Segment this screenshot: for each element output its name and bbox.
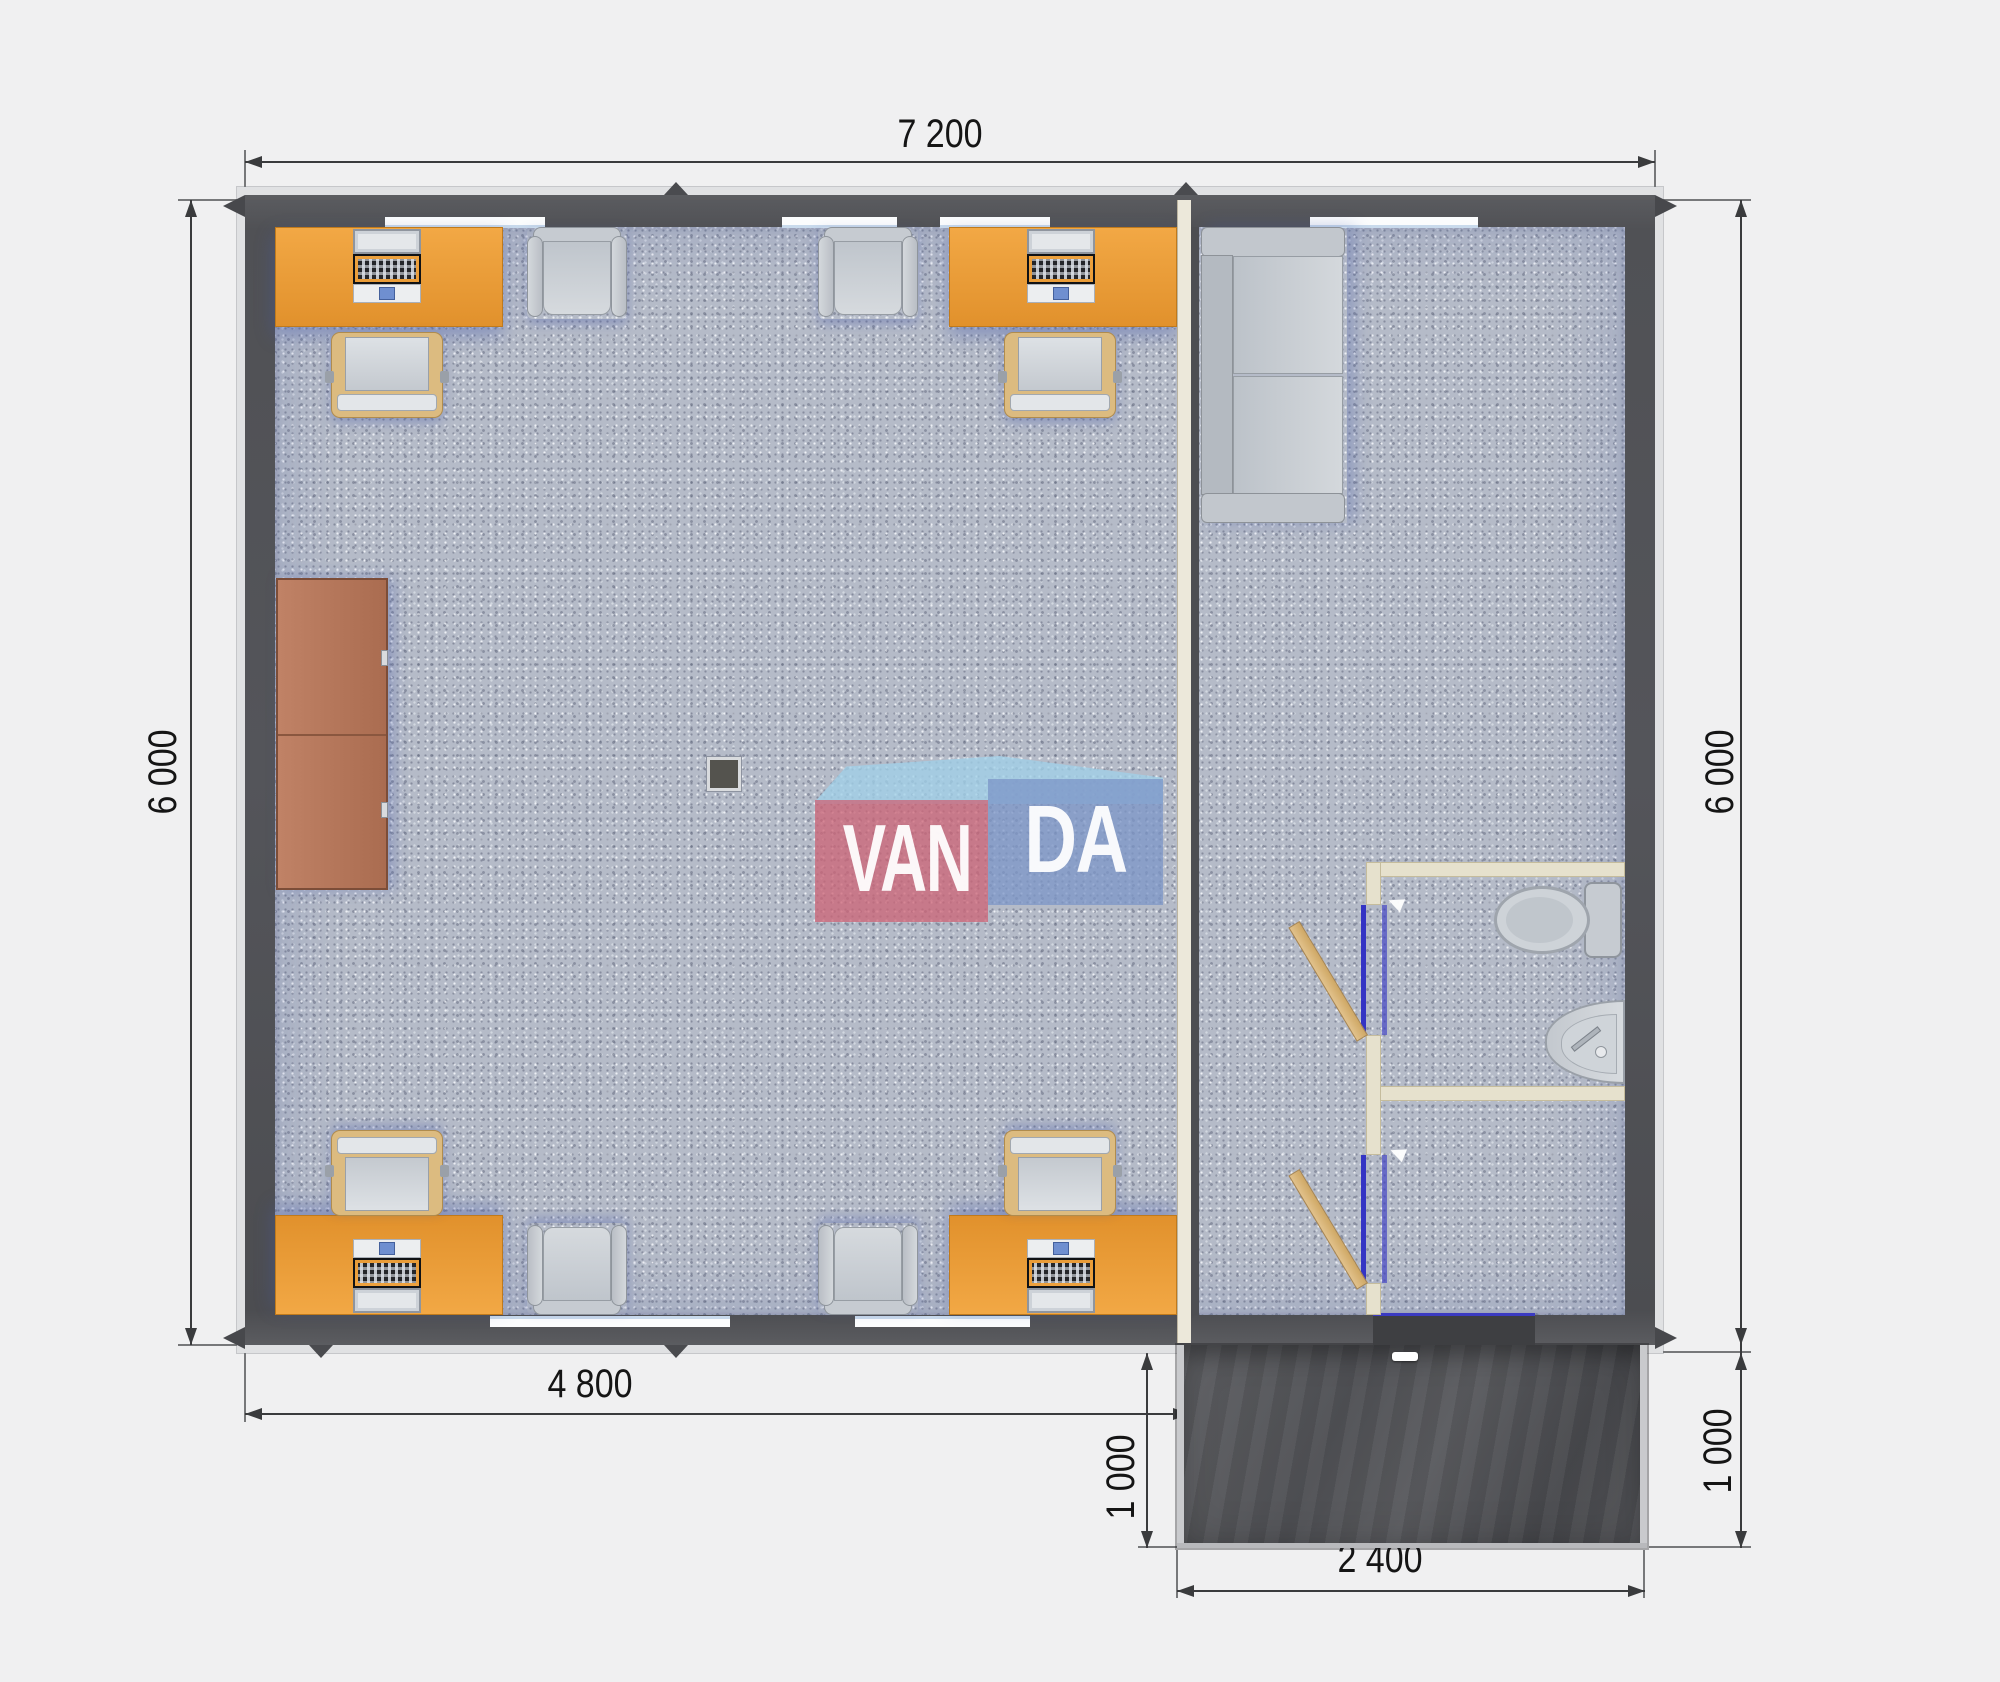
- corner-marker-icon: [1655, 195, 1677, 217]
- arrowhead-icon: [1177, 1585, 1194, 1597]
- keyboard-icon: [1027, 1258, 1095, 1288]
- chair-seat: [834, 241, 902, 315]
- arrowhead-icon: [1735, 1328, 1747, 1345]
- chair-armrest: [527, 236, 543, 317]
- bathroom-wall-left-segment: [1366, 862, 1381, 905]
- computer-bottom-right: [1027, 1239, 1095, 1313]
- floor-column: [707, 757, 741, 791]
- dimension-label-left-height: 6 000: [141, 687, 185, 857]
- chair-armrest: [325, 1165, 334, 1177]
- arrowhead-icon: [1141, 1353, 1153, 1370]
- bathroom-wall-left-segment: [1366, 1283, 1381, 1315]
- mouse-icon: [1053, 287, 1069, 300]
- guest-chair-bottom-1: [527, 1223, 627, 1315]
- watermark-blue-box: DA: [988, 779, 1163, 905]
- office-chair-top-left: [331, 332, 443, 418]
- chair-armrest: [818, 236, 834, 317]
- monitor-icon: [1027, 229, 1095, 254]
- chair-armrest: [998, 371, 1007, 383]
- guest-chair-top-1: [527, 227, 627, 319]
- chair-backrest: [533, 1299, 621, 1315]
- chair-armrest: [325, 371, 334, 383]
- dimension-line-porch-left: [1146, 1353, 1148, 1548]
- door-frame: [1382, 1155, 1387, 1283]
- arrowhead-icon: [1628, 1585, 1645, 1597]
- monitor-icon: [353, 229, 421, 254]
- dimension-line-left: [190, 200, 192, 1345]
- sofa-armrest: [1201, 227, 1345, 257]
- chair-seat: [345, 1157, 429, 1211]
- partition-wall-core: [1191, 227, 1199, 1315]
- arrowhead-icon: [245, 1408, 262, 1420]
- toilet-seat: [1506, 897, 1573, 943]
- sofa-armrest: [1201, 493, 1345, 523]
- chair-armrest: [611, 1225, 627, 1306]
- chair-armrest: [611, 236, 627, 317]
- chair-backrest: [337, 1137, 437, 1154]
- chair-armrest: [440, 371, 449, 383]
- chair-seat: [345, 337, 429, 391]
- computer-top-left: [353, 229, 421, 303]
- chair-backrest: [1010, 394, 1110, 411]
- bathroom-wall-middle: [1366, 1086, 1625, 1101]
- watermark-text-left: VAN: [843, 800, 961, 918]
- bathroom-wall-left-segment: [1366, 1035, 1381, 1155]
- monitor-icon: [1027, 1288, 1095, 1313]
- door-frame: [1361, 905, 1366, 1035]
- office-chair-bottom-left: [331, 1130, 443, 1216]
- sofa-cushion: [1233, 376, 1343, 494]
- entrance-porch: [1177, 1345, 1647, 1548]
- chair-backrest: [337, 394, 437, 411]
- mouse-icon: [1053, 1242, 1069, 1255]
- dimension-line-top: [245, 161, 1655, 163]
- porch-edge-left: [1177, 1345, 1184, 1543]
- corner-marker-icon: [223, 1327, 245, 1349]
- office-chair-bottom-right: [1004, 1130, 1116, 1216]
- chair-seat: [543, 241, 611, 315]
- chair-armrest: [902, 1225, 918, 1306]
- computer-base: [1027, 1239, 1095, 1258]
- chair-backrest: [1010, 1137, 1110, 1154]
- chair-armrest: [1113, 1165, 1122, 1177]
- chair-seat: [543, 1227, 611, 1301]
- chair-seat: [834, 1227, 902, 1301]
- computer-bottom-left: [353, 1239, 421, 1313]
- chair-armrest: [440, 1165, 449, 1177]
- module-joint-marker-icon: [664, 182, 688, 195]
- watermark-red-box: VAN: [815, 800, 988, 922]
- dimension-label-porch-left-depth: 1 000: [1099, 1392, 1143, 1562]
- chair-backrest: [824, 1299, 912, 1315]
- module-joint-marker-icon: [1174, 182, 1198, 195]
- office-chair-top-right: [1004, 332, 1116, 418]
- computer-base: [1027, 284, 1095, 303]
- computer-base: [353, 284, 421, 303]
- sofa-cushion: [1233, 256, 1343, 374]
- watermark-text-right: DA: [1009, 779, 1142, 901]
- guest-chair-bottom-2: [818, 1223, 918, 1315]
- arrowhead-icon: [185, 1328, 197, 1345]
- cabinet-handle: [381, 650, 388, 666]
- sink-basin: [1561, 1014, 1617, 1074]
- chair-armrest: [527, 1225, 543, 1306]
- entry-door: [1373, 1313, 1535, 1345]
- faucet-knob: [1595, 1046, 1607, 1058]
- chair-armrest: [1113, 371, 1122, 383]
- door-frame: [1361, 1155, 1366, 1283]
- partition-wall: [1177, 200, 1191, 1343]
- arrowhead-icon: [185, 200, 197, 217]
- toilet-bowl: [1494, 886, 1590, 954]
- arrowhead-icon: [1735, 200, 1747, 217]
- dimension-label-overall-width: 7 200: [855, 112, 1025, 156]
- arrowhead-icon: [245, 156, 262, 168]
- chair-armrest: [818, 1225, 834, 1306]
- computer-top-right: [1027, 229, 1095, 303]
- keyboard-icon: [1027, 254, 1095, 284]
- window: [490, 1316, 730, 1327]
- cabinet-handle: [381, 802, 388, 818]
- floor-plan-canvas: 7 200 6 000 6 000 1 000 4 800 1 000 2 40…: [0, 0, 2000, 1682]
- corner-marker-icon: [1655, 1327, 1677, 1349]
- keyboard-icon: [353, 1258, 421, 1288]
- dimension-line-porch-bottom: [1177, 1590, 1645, 1592]
- door-handle-icon: [1392, 1352, 1418, 1361]
- dimension-label-porch-right-depth: 1 000: [1696, 1366, 1740, 1536]
- sofa-backrest: [1201, 255, 1233, 495]
- bathroom-wall-top: [1366, 862, 1625, 877]
- dimension-line-bottom-left: [245, 1413, 1190, 1415]
- arrowhead-icon: [1638, 156, 1655, 168]
- cabinet-door-split: [278, 734, 386, 736]
- module-joint-marker-icon: [309, 1345, 333, 1358]
- sofa: [1199, 227, 1347, 523]
- window: [855, 1316, 1030, 1327]
- dimension-line-right: [1740, 200, 1742, 1548]
- module-joint-marker-icon: [664, 1345, 688, 1358]
- mouse-icon: [379, 287, 395, 300]
- chair-armrest: [998, 1165, 1007, 1177]
- chair-seat: [1018, 337, 1102, 391]
- monitor-icon: [353, 1288, 421, 1313]
- guest-chair-top-2: [818, 227, 918, 319]
- dimension-label-right-height: 6 000: [1698, 687, 1742, 857]
- storage-cabinet: [276, 578, 388, 890]
- mouse-icon: [379, 1242, 395, 1255]
- dimension-label-office-width: 4 800: [505, 1362, 675, 1406]
- door-frame: [1382, 905, 1387, 1035]
- keyboard-icon: [353, 254, 421, 284]
- chair-armrest: [902, 236, 918, 317]
- chair-seat: [1018, 1157, 1102, 1211]
- corner-marker-icon: [223, 195, 245, 217]
- porch-edge-right: [1640, 1345, 1647, 1543]
- computer-base: [353, 1239, 421, 1258]
